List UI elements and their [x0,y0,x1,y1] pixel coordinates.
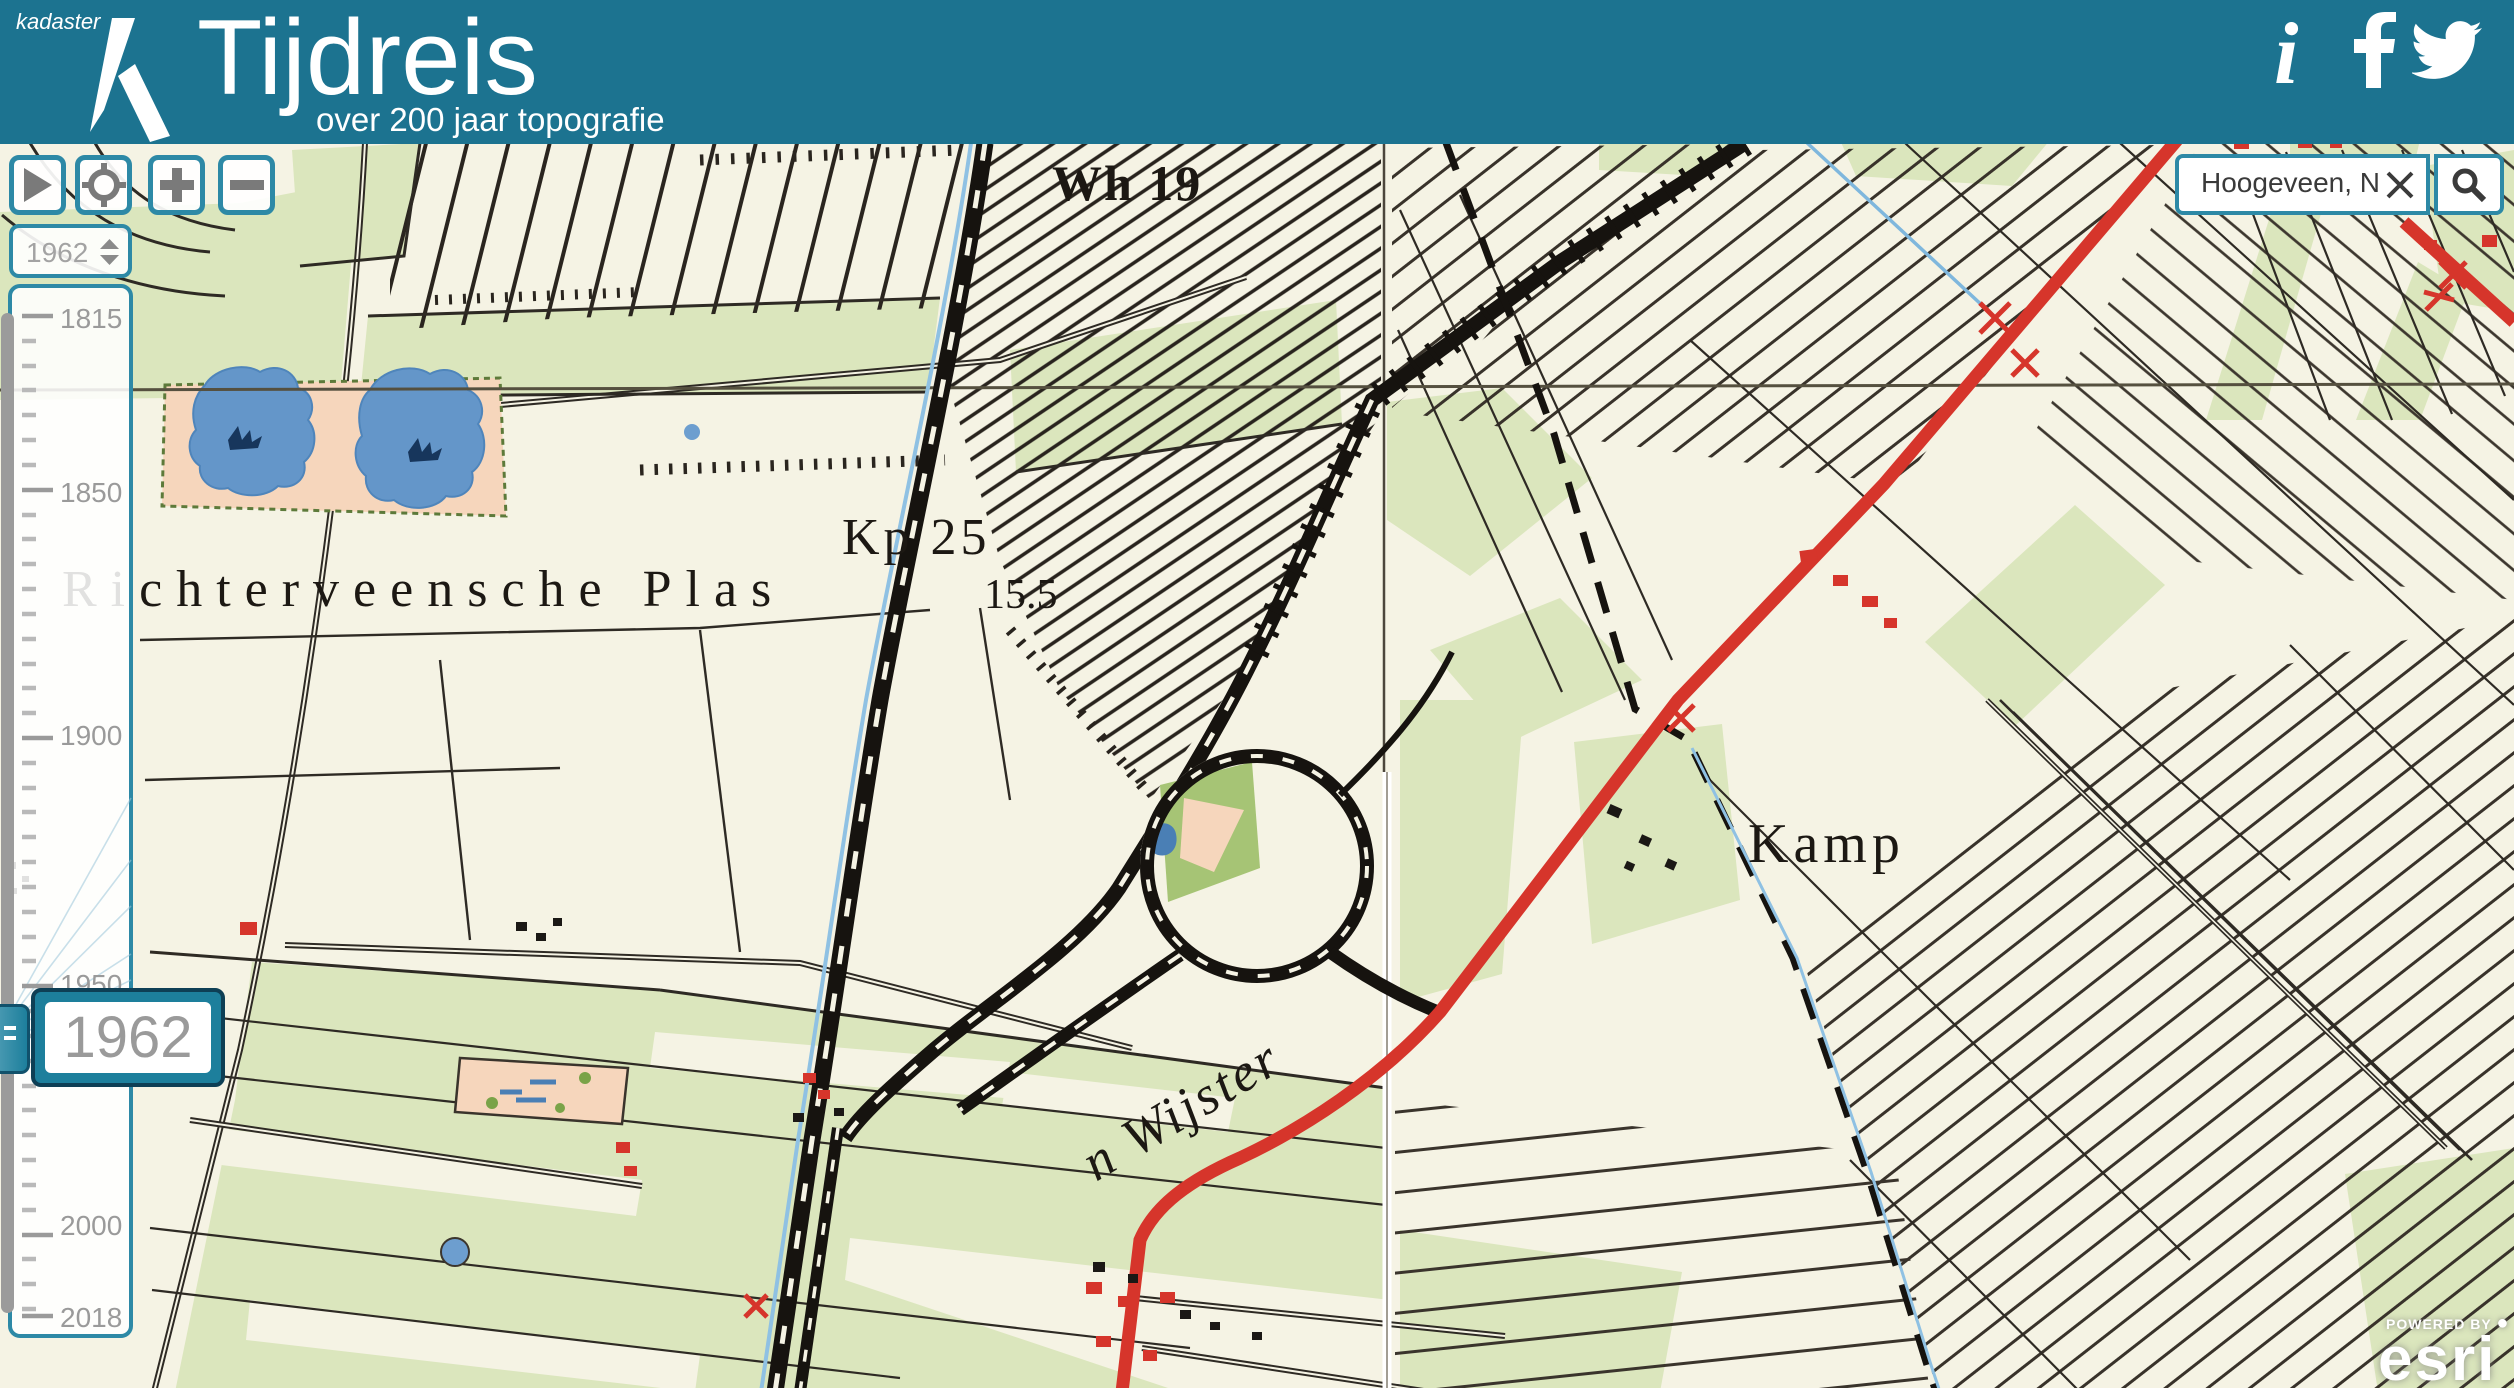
svg-text:Wh 19: Wh 19 [1052,155,1202,211]
svg-text:15.5: 15.5 [984,572,1058,618]
svg-text:Richterveensche Plas: Richterveensche Plas [62,561,785,618]
svg-text:Kp 25: Kp 25 [842,509,991,566]
svg-text:Kamp: Kamp [1748,813,1905,875]
